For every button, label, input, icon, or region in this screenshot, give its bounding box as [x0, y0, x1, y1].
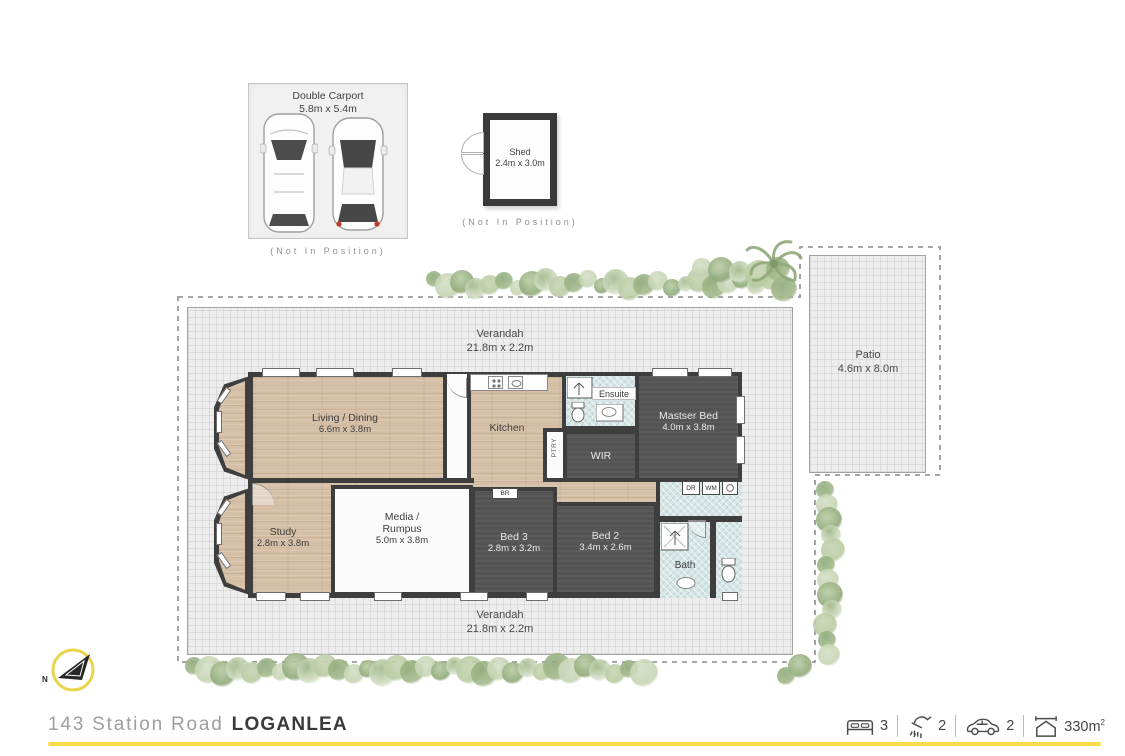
- bush-icon: [687, 267, 713, 293]
- cooktop-icon: [488, 376, 503, 389]
- bush-icon: [282, 653, 310, 681]
- carport-title: Double Carport: [292, 90, 363, 102]
- footer-accent-rule: [48, 742, 1101, 746]
- washer-label: WM: [702, 481, 720, 495]
- bush-icon: [519, 271, 545, 297]
- bush-icon: [313, 654, 337, 678]
- patio-label: Patio 4.6m x 8.0m: [808, 348, 928, 376]
- ensuite-label: Ensuite: [592, 387, 636, 400]
- stat-divider: [955, 715, 956, 737]
- bush-icon: [603, 269, 629, 295]
- window-icon: [736, 436, 745, 464]
- north-compass-icon: [46, 645, 98, 697]
- bush-icon: [502, 662, 524, 684]
- bush-icon: [817, 569, 839, 591]
- walk-in-robe: WIR: [563, 430, 639, 482]
- bush-icon: [185, 657, 203, 675]
- stat-divider: [1023, 715, 1024, 737]
- laundry-tub-icon: [722, 481, 738, 495]
- bush-icon: [241, 662, 263, 684]
- bush-icon: [663, 279, 681, 297]
- bay-window-pane-icon: [216, 411, 222, 433]
- bush-icon: [777, 667, 795, 685]
- bush-icon: [605, 664, 625, 684]
- window-icon: [262, 368, 300, 377]
- bush-icon: [400, 660, 424, 684]
- bush-icon: [471, 661, 497, 687]
- bush-icon: [558, 658, 584, 684]
- bush-icon: [495, 272, 513, 290]
- window-icon: [722, 592, 738, 601]
- vanity-icon: [596, 404, 624, 422]
- window-icon: [374, 592, 402, 601]
- bush-icon: [534, 268, 558, 292]
- bush-icon: [226, 657, 250, 681]
- car-top-view-icon: [260, 112, 318, 234]
- bush-icon: [533, 663, 551, 681]
- window-icon: [316, 368, 354, 377]
- bay-window-pane-icon: [216, 523, 222, 545]
- bush-icon: [257, 658, 277, 678]
- bush-icon: [618, 277, 642, 301]
- bedroom-2: Bed 2 3.4m x 2.6m: [553, 502, 658, 596]
- baths-stat: 2: [907, 715, 946, 738]
- window-icon: [526, 592, 548, 601]
- dryer-label: DR: [682, 481, 700, 495]
- beds-stat: 3: [845, 715, 888, 737]
- house-area-icon: [1033, 714, 1059, 738]
- bush-icon: [648, 271, 668, 291]
- bush-icon: [816, 494, 838, 516]
- bush-icon: [822, 600, 842, 620]
- car-icon: [965, 716, 1001, 737]
- bush-icon: [816, 481, 834, 499]
- compass-north-label: N: [42, 675, 48, 684]
- wc: [712, 518, 742, 598]
- palm-tree-icon: [745, 236, 803, 288]
- carport-note: (Not In Position): [238, 246, 418, 256]
- bush-icon: [788, 654, 812, 678]
- stat-divider: [897, 715, 898, 737]
- bush-icon: [487, 657, 511, 681]
- bush-icon: [518, 658, 538, 678]
- bush-icon: [702, 275, 726, 299]
- bush-icon: [359, 660, 377, 678]
- bush-icon: [195, 656, 223, 684]
- bush-icon: [574, 654, 598, 678]
- shower-unit-icon: [567, 377, 593, 399]
- bush-icon: [594, 278, 610, 294]
- bush-icon: [816, 507, 842, 533]
- bush-icon: [384, 655, 410, 681]
- shed-dims: 2.4m x 3.0m: [495, 158, 545, 168]
- bush-icon: [415, 656, 437, 678]
- bush-icon: [717, 272, 739, 294]
- bush-icon: [818, 644, 840, 666]
- window-icon: [736, 396, 745, 424]
- window-icon: [256, 592, 286, 601]
- bush-icon: [510, 280, 526, 296]
- bush-icon: [210, 661, 236, 687]
- verandah-top-label: Verandah 21.8m x 2.2m: [430, 327, 570, 355]
- bush-icon: [818, 631, 836, 649]
- bush-icon: [297, 658, 323, 684]
- window-icon: [300, 592, 330, 601]
- bed-icon: [845, 715, 875, 737]
- bush-icon: [465, 278, 487, 300]
- bush-icon: [633, 274, 655, 296]
- bush-icon: [446, 657, 464, 675]
- sink-icon: [508, 376, 523, 389]
- bedroom-3: Bed 3 2.8m x 3.2m: [471, 487, 557, 596]
- shed-note: (Not In Position): [440, 217, 600, 227]
- bush-icon: [549, 276, 571, 298]
- bush-icon: [344, 664, 364, 684]
- bush-icon: [678, 276, 694, 292]
- bush-icon: [543, 653, 571, 681]
- area-stat: 330m2: [1033, 714, 1105, 738]
- bush-icon: [813, 613, 837, 637]
- shed-title: Shed: [509, 147, 530, 157]
- master-bedroom: Mastser Bed 4.0m x 3.8m: [635, 372, 742, 482]
- bush-icon: [821, 525, 841, 545]
- bush-icon: [692, 258, 712, 278]
- bush-icon: [817, 582, 843, 608]
- pantry-label: PTRY: [551, 438, 558, 457]
- toilet-icon: [570, 402, 586, 424]
- property-address: 143 Station RoadLOGANLEA: [48, 714, 348, 736]
- bath-label: Bath: [660, 560, 710, 571]
- window-icon: [392, 368, 422, 377]
- bush-icon: [579, 270, 597, 288]
- bush-icon: [480, 275, 500, 295]
- bush-icon: [426, 271, 442, 287]
- car-top-view-icon: [328, 116, 388, 232]
- bush-icon: [589, 659, 611, 681]
- window-icon: [460, 592, 488, 601]
- bush-icon: [821, 538, 845, 562]
- media-room: Media / Rumpus 5.0m x 3.8m: [331, 485, 473, 596]
- window-icon: [652, 368, 688, 377]
- bush-icon: [456, 656, 484, 684]
- bush-icon: [435, 273, 461, 299]
- bush-icon: [431, 661, 451, 681]
- toilet-icon: [720, 558, 738, 584]
- bath-basin-icon: [674, 576, 698, 591]
- shower-icon: [907, 715, 933, 738]
- cars-stat: 2: [965, 716, 1014, 737]
- ensuite: [562, 372, 640, 430]
- bush-icon: [564, 273, 584, 293]
- shed-door-icon: [461, 132, 484, 153]
- verandah-bottom-label: Verandah 21.8m x 2.2m: [430, 608, 570, 636]
- address-suburb: LOGANLEA: [232, 714, 348, 735]
- robe-label: BR: [492, 488, 518, 499]
- shower-unit-icon: [661, 523, 689, 551]
- bush-icon: [328, 659, 350, 681]
- floorplan-page: Double Carport 5.8m x 5.4m (Not In Posit…: [0, 0, 1125, 756]
- window-icon: [698, 368, 732, 377]
- bush-icon: [620, 660, 638, 678]
- property-stats: 3 2 2: [845, 712, 1105, 740]
- address-street: 143 Station Road: [48, 714, 224, 735]
- bush-icon: [272, 663, 290, 681]
- bush-icon: [450, 270, 474, 294]
- bush-icon: [630, 659, 658, 687]
- interior-wall: [248, 478, 474, 483]
- bush-icon: [369, 659, 397, 687]
- bush-icon: [817, 556, 835, 574]
- shed-door-icon: [461, 154, 484, 175]
- bush-icon: [708, 257, 734, 283]
- shed-label: Shed 2.4m x 3.0m: [483, 147, 557, 169]
